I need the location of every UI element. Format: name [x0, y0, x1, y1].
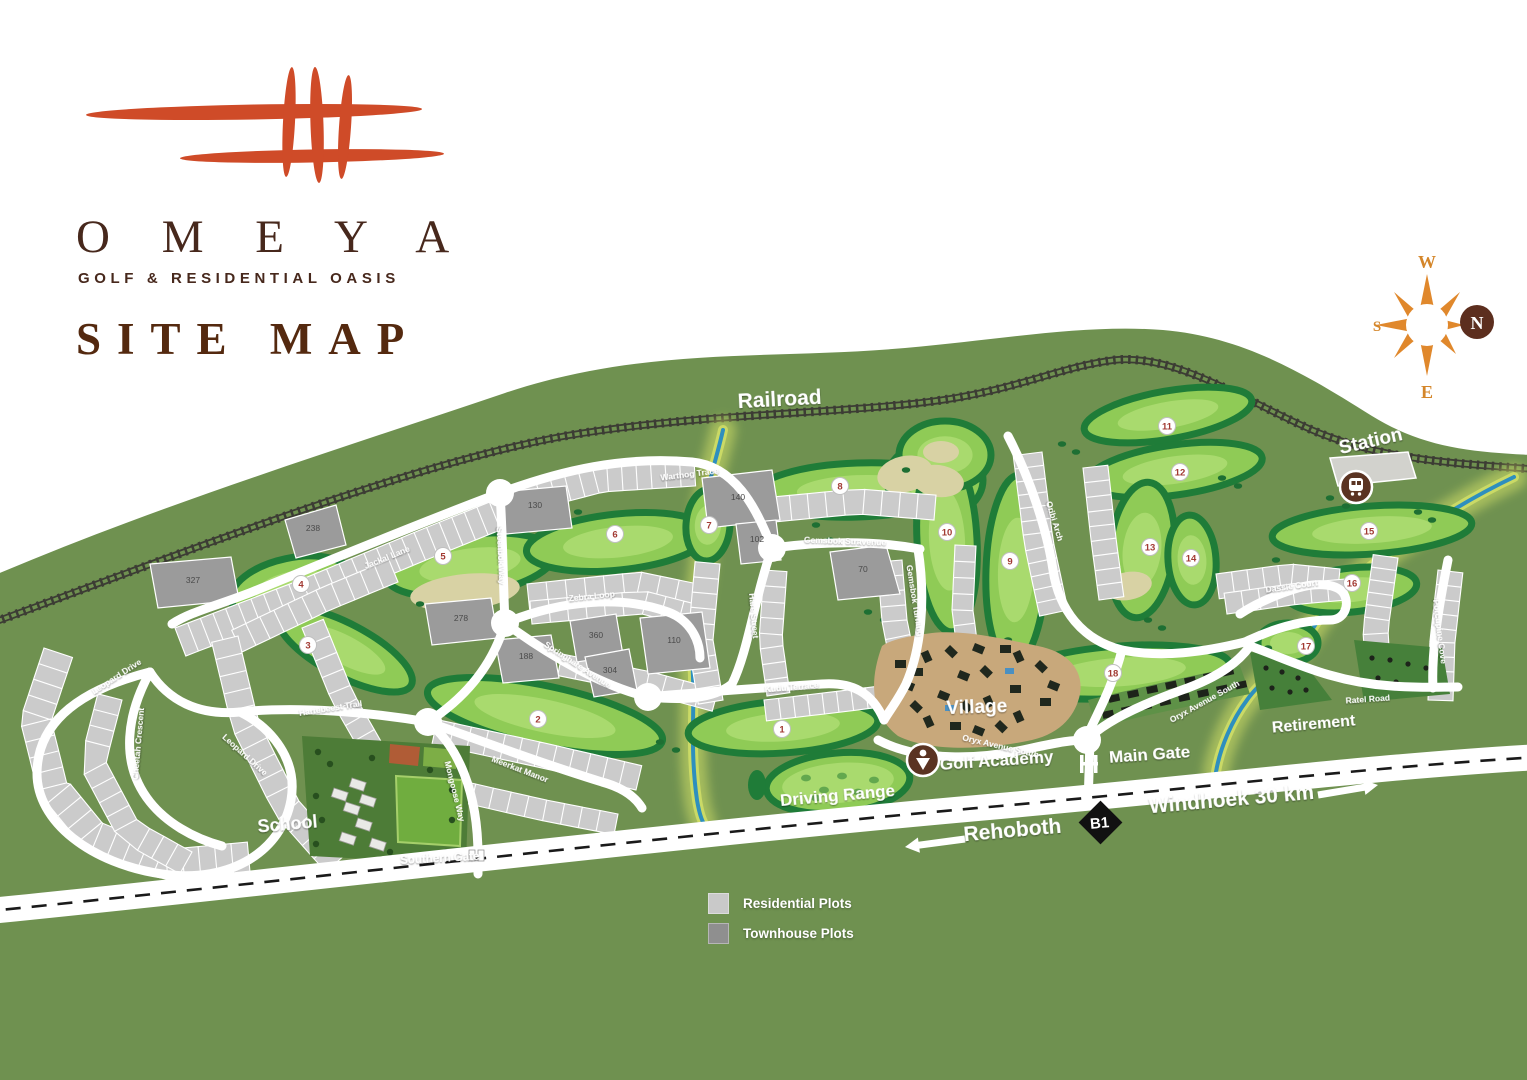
golf-hole-marker-4: 4: [293, 576, 310, 593]
golf-hole-marker-1: 1: [774, 721, 791, 738]
golf-hole-marker-18: 18: [1105, 665, 1122, 682]
roundabout: [491, 609, 519, 637]
tree-icon: [1342, 503, 1350, 509]
retirement-building: [1295, 675, 1300, 680]
range-target: [837, 773, 847, 780]
tree-icon: [416, 601, 424, 607]
plot-number: 188: [519, 651, 533, 661]
retirement-building: [1423, 665, 1428, 670]
tree-icon: [1158, 625, 1166, 631]
svg-text:2: 2: [535, 714, 540, 725]
map-legend: Residential Plots Townhouse Plots: [708, 893, 854, 953]
b1-badge-label: B1: [1089, 814, 1110, 833]
svg-text:3: 3: [305, 640, 310, 651]
tree-icon: [812, 522, 820, 528]
svg-text:17: 17: [1301, 641, 1312, 652]
golf-hole-marker-9: 9: [1002, 553, 1019, 570]
golf-hole-marker-13: 13: [1142, 539, 1159, 556]
tree-icon: [672, 747, 680, 753]
range-target: [801, 775, 811, 782]
golf-hole-marker-5: 5: [435, 548, 452, 565]
golf-academy-icon: [907, 744, 939, 776]
tennis-court: [389, 744, 420, 766]
golf-hole-marker-17: 17: [1298, 638, 1315, 655]
retirement-building: [1387, 657, 1392, 662]
tree-icon: [1144, 617, 1152, 623]
tree-icon: [902, 467, 910, 473]
plot-number: 304: [603, 665, 617, 675]
retirement-building: [1303, 687, 1308, 692]
golf-hole-marker-10: 10: [939, 524, 956, 541]
svg-text:10: 10: [942, 527, 953, 538]
village-building: [950, 722, 961, 730]
townhouse-swatch-icon: [708, 923, 729, 944]
tree-icon: [1072, 449, 1080, 455]
compass-west: W: [1418, 252, 1436, 272]
roundabout: [486, 479, 514, 507]
golf-hole-marker-6: 6: [607, 526, 624, 543]
tree-icon: [315, 749, 321, 755]
svg-text:18: 18: [1108, 668, 1119, 679]
tree-icon: [327, 761, 333, 767]
svg-text:8: 8: [837, 481, 842, 492]
plot-number: 140: [731, 492, 745, 502]
retirement-building: [1269, 685, 1274, 690]
retirement-building: [1369, 655, 1374, 660]
tree-icon: [319, 817, 325, 823]
legend-item-residential: Residential Plots: [708, 893, 854, 914]
svg-text:16: 16: [1347, 578, 1358, 589]
svg-text:11: 11: [1162, 421, 1173, 432]
railroad-label: Railroad: [737, 386, 822, 413]
plot-number: 327: [186, 575, 200, 585]
train-station-icon: [1340, 471, 1372, 503]
pool: [1005, 668, 1014, 674]
village-building: [1040, 698, 1051, 706]
compass-south: S: [1373, 319, 1381, 335]
legend-label: Residential Plots: [743, 896, 852, 911]
tree-icon: [1234, 483, 1242, 489]
golf-hole-marker-2: 2: [530, 711, 547, 728]
svg-text:5: 5: [440, 551, 446, 562]
tree-icon: [313, 841, 319, 847]
svg-text:9: 9: [1007, 556, 1012, 567]
roundabout: [1073, 726, 1101, 754]
sand-bunker: [923, 441, 959, 463]
retirement-building: [1405, 661, 1410, 666]
svg-text:6: 6: [612, 529, 617, 540]
retirement-building: [1279, 669, 1284, 674]
residential-swatch-icon: [708, 893, 729, 914]
tree-icon: [313, 793, 319, 799]
retirement-building: [1263, 665, 1268, 670]
tree-icon: [1414, 509, 1422, 515]
compass-rose-icon: W N E S: [1352, 248, 1502, 406]
tree-icon: [574, 509, 582, 515]
omeya-logo: O M E Y A GOLF & RESIDENTIAL OASIS SITE …: [62, 52, 462, 352]
golf-hole-marker-12: 12: [1172, 464, 1189, 481]
tree-icon: [1428, 517, 1436, 523]
village-building: [1000, 645, 1011, 653]
tree-icon: [864, 609, 872, 615]
svg-text:1: 1: [779, 724, 785, 735]
retirement-building: [1375, 675, 1380, 680]
plot-number: 278: [454, 613, 468, 623]
tree-icon: [427, 767, 433, 773]
svg-text:12: 12: [1175, 467, 1186, 478]
svg-text:4: 4: [298, 579, 304, 590]
tree-icon: [449, 817, 455, 823]
village-building: [1010, 685, 1021, 693]
logo-subtitle: GOLF & RESIDENTIAL OASIS: [78, 270, 462, 287]
roundabout: [414, 708, 442, 736]
tree-icon: [1058, 441, 1066, 447]
tree-icon: [1326, 495, 1334, 501]
site-map-page: Warthog TraceJackal LaneSteenbok WayZebr…: [0, 0, 1527, 1080]
legend-item-townhouse: Townhouse Plots: [708, 923, 854, 944]
plot-number: 70: [858, 564, 868, 574]
plot-number: 130: [528, 500, 542, 510]
page-title: SITE MAP: [76, 313, 462, 365]
village-building: [895, 660, 906, 668]
plot-number: 102: [750, 534, 764, 544]
tree-icon: [369, 755, 375, 761]
tree-icon: [1218, 475, 1226, 481]
golf-hole-marker-14: 14: [1183, 550, 1200, 567]
golf-hole-marker-11: 11: [1159, 418, 1176, 435]
logo-title: O M E Y A: [76, 210, 462, 264]
plot-number: 360: [589, 630, 603, 640]
svg-text:14: 14: [1186, 553, 1197, 564]
svg-text:7: 7: [706, 520, 711, 531]
golf-hole-marker-16: 16: [1344, 575, 1361, 592]
svg-text:15: 15: [1364, 526, 1375, 537]
plot-number: 238: [306, 523, 320, 533]
svg-text:13: 13: [1145, 542, 1156, 553]
golf-hole-marker-7: 7: [701, 517, 718, 534]
legend-label: Townhouse Plots: [743, 926, 854, 941]
golf-hole-marker-8: 8: [832, 478, 849, 495]
tree-icon: [1272, 557, 1280, 563]
compass-north: N: [1471, 313, 1484, 333]
roundabout: [634, 683, 662, 711]
tree-icon: [387, 849, 393, 855]
retirement-building: [1287, 689, 1292, 694]
compass-east: E: [1421, 382, 1433, 402]
logo-brushstrokes-icon: [62, 52, 462, 202]
golf-hole-marker-3: 3: [300, 637, 317, 654]
tree-icon: [656, 739, 664, 745]
tee-box: [748, 770, 766, 800]
village-label: Village: [946, 696, 1008, 719]
plot-number: 110: [667, 635, 681, 645]
golf-hole-marker-15: 15: [1361, 523, 1378, 540]
